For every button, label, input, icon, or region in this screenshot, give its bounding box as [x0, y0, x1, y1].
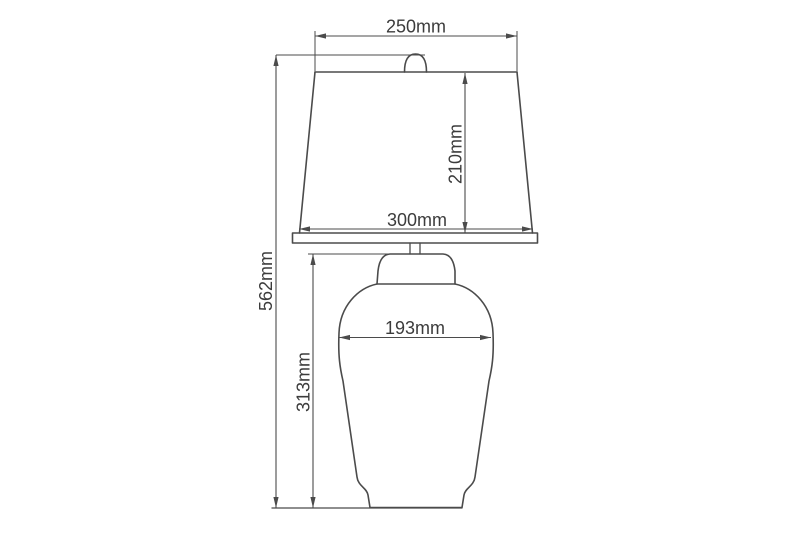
- lamp-outline: [272, 54, 538, 508]
- shade-left-slant: [300, 72, 316, 233]
- shade-right-slant: [517, 72, 533, 233]
- dimension-shade-height: 210mm: [446, 73, 466, 233]
- neck-outline: [377, 254, 455, 284]
- dim-label-shade-height: 210mm: [446, 124, 466, 184]
- dimension-body-width: 193mm: [339, 318, 491, 338]
- dimension-total-height: 562mm: [256, 55, 425, 508]
- dim-label-shade-bottom-width: 300mm: [387, 210, 447, 230]
- finial-outline: [405, 54, 427, 72]
- lamp-diagram-canvas: 250mm 562mm 210mm 300mm 313mm 193mm: [0, 0, 800, 533]
- dim-label-total-height: 562mm: [256, 251, 276, 311]
- dimension-body-height: 313mm: [294, 254, 390, 508]
- dim-label-shade-top-width: 250mm: [386, 17, 446, 37]
- lamp-dimension-drawing: 250mm 562mm 210mm 300mm 313mm 193mm: [0, 0, 800, 533]
- dimension-shade-top-width: 250mm: [315, 17, 517, 72]
- dimension-shade-bottom-width: 300mm: [299, 210, 533, 230]
- dim-label-body-width: 193mm: [385, 318, 445, 338]
- dim-label-body-height: 313mm: [294, 352, 314, 412]
- shade-bottom-rim: [293, 233, 538, 243]
